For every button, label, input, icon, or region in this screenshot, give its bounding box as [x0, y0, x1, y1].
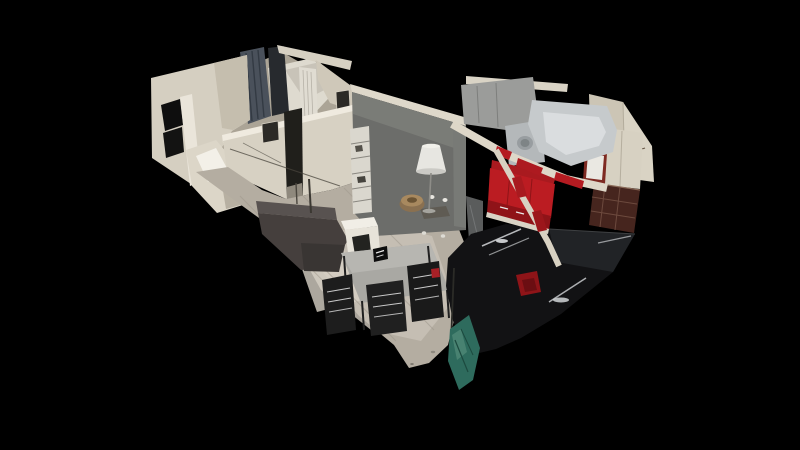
bathroom-grey-walls — [461, 77, 539, 130]
wall-frame-lower — [262, 121, 279, 143]
backsplash-tiles — [589, 183, 640, 233]
chair-center — [366, 280, 407, 336]
floor-debris-1 — [431, 351, 435, 353]
3d-dollhouse-viewport[interactable] — [0, 0, 800, 450]
floor-debris-2 — [410, 363, 414, 365]
shelf-item-2 — [357, 176, 366, 183]
wall-outlet-3 — [422, 231, 426, 235]
wall-outlet-4 — [441, 234, 445, 238]
scene-svg — [0, 0, 800, 450]
floor-glare-blob-2 — [553, 298, 569, 303]
chair-red-accent — [431, 268, 440, 278]
floor-glare-blob-1 — [496, 239, 508, 243]
wicker-basket-hole — [407, 197, 417, 203]
sofa-chaise — [301, 243, 345, 272]
wall-outlet-2 — [443, 198, 448, 202]
chair-left — [322, 274, 356, 335]
washer-porthole-inner — [521, 139, 530, 147]
floor-lamp-shade-top — [422, 144, 440, 148]
doorframe-remnant-2 — [296, 183, 297, 204]
grey-wall-door-panel — [453, 124, 466, 228]
floor-lamp-base — [423, 209, 436, 213]
shelf-item-1 — [355, 145, 363, 152]
